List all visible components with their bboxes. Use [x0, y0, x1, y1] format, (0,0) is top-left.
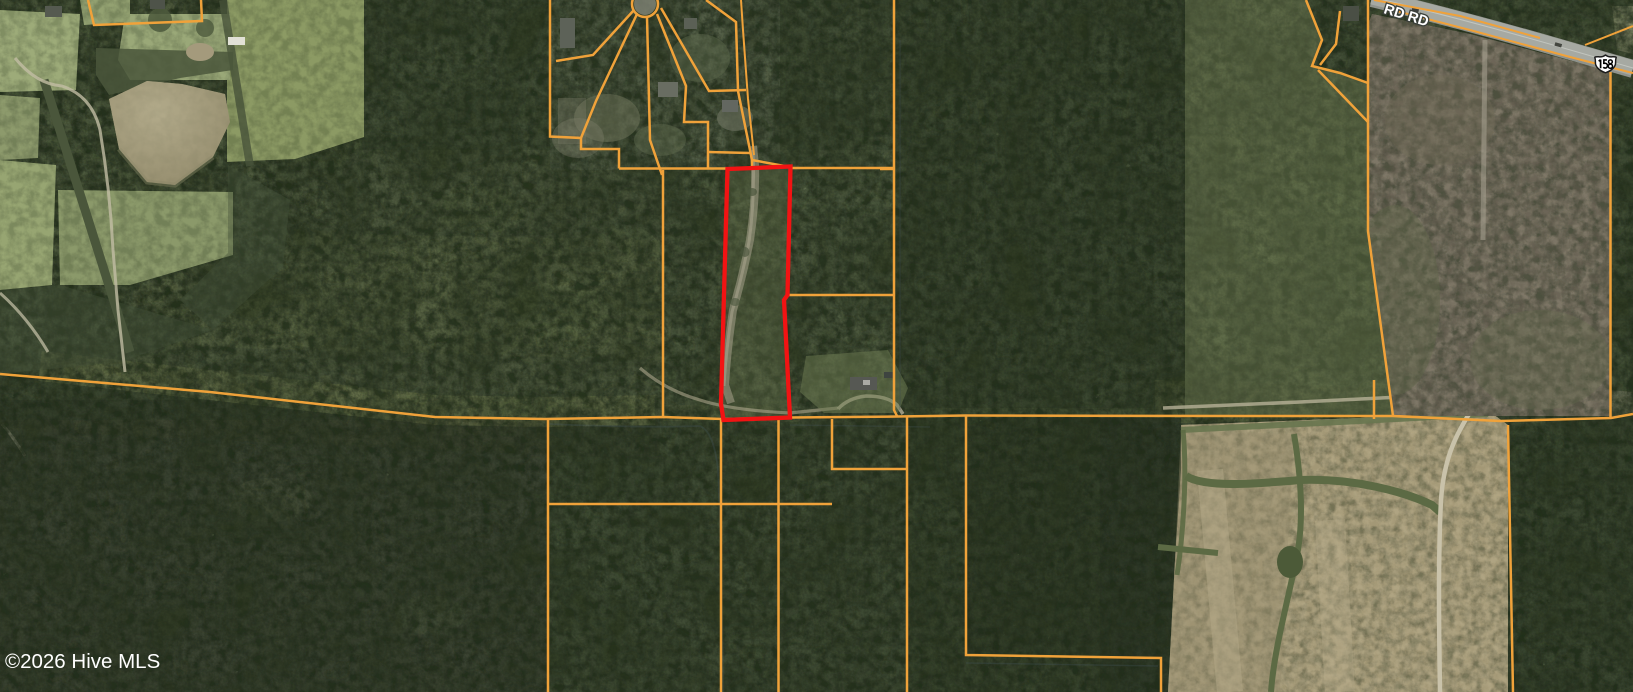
- svg-text:©2026 Hive MLS: ©2026 Hive MLS: [5, 650, 160, 673]
